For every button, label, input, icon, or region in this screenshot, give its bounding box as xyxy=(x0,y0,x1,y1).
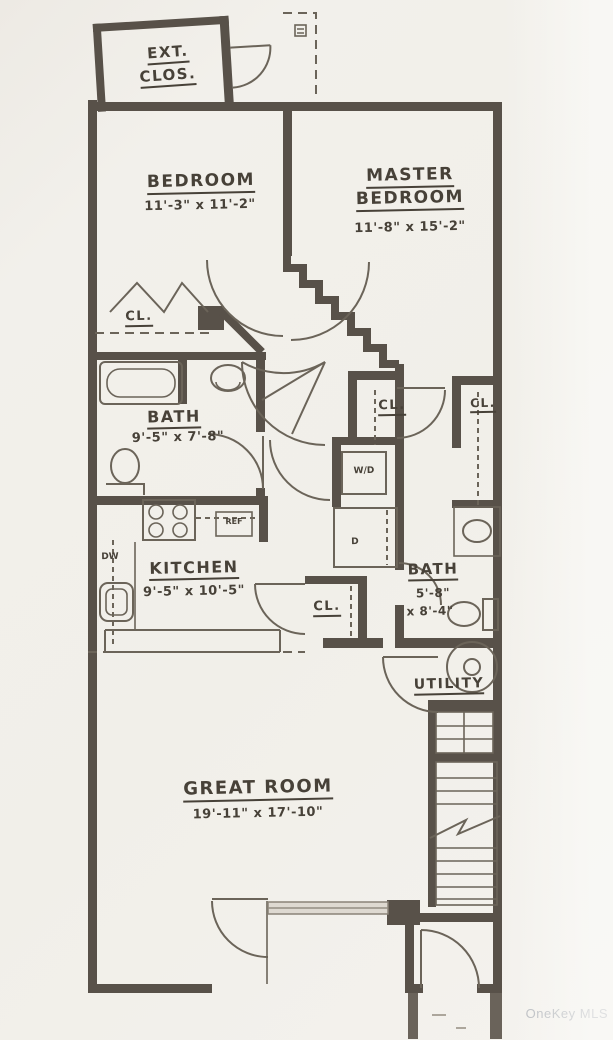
stair-break-line xyxy=(430,816,500,838)
bath1-label: BATH xyxy=(142,408,206,429)
kitchen-peninsula xyxy=(105,630,280,652)
porch-wall-left xyxy=(408,993,418,1039)
openings xyxy=(268,902,502,1039)
kitchen-dims: 9'-5" x 10'-5" xyxy=(136,584,252,600)
stairs xyxy=(430,712,500,905)
bath1-toilet xyxy=(111,449,139,483)
great-room-door-arc xyxy=(212,899,268,957)
bifold-doors xyxy=(110,283,208,312)
hall-closet-label: CL. xyxy=(371,399,413,417)
dashed-boundary xyxy=(283,13,316,100)
washer-dryer-label: W/D xyxy=(346,467,382,477)
dishwasher-label: DW xyxy=(98,553,122,563)
master-bedroom-dims: 11'-8" x 15'-2" xyxy=(350,220,470,236)
hall-door-arc xyxy=(242,362,325,445)
kitchen-closet-door-arc xyxy=(255,584,305,634)
floor-plan-page: EXT. CLOS. BEDROOM 11'-3" x 11'-2" MASTE… xyxy=(0,0,613,1040)
kitchen-closet-label: CL. xyxy=(306,600,348,618)
master-closet-label: CL. xyxy=(464,397,502,413)
refrigerator-label: REF xyxy=(217,518,251,527)
bath1-dims: 9'-5" x 7'-8" xyxy=(122,430,234,446)
great-room-dims: 19'-11" x 17'-10" xyxy=(186,805,330,822)
bath2-label: BATH xyxy=(403,561,463,581)
bath1-sink xyxy=(211,365,245,391)
bedroom-closet-label: CL. xyxy=(116,310,162,328)
ext-closet-door-arc xyxy=(230,45,272,87)
door-arcs xyxy=(207,260,479,988)
master-bedroom-label-1: MASTER xyxy=(360,166,460,189)
great-room-label: GREAT ROOM xyxy=(182,777,334,802)
dryer-label: D xyxy=(345,538,365,548)
entry-door-arc xyxy=(421,930,479,988)
watermark: OneKey MLS xyxy=(518,1007,608,1021)
kitchen-label: KITCHEN xyxy=(147,559,241,581)
bedroom-dims: 11'-3" x 11'-2" xyxy=(140,198,260,214)
porch-wall-right xyxy=(490,993,502,1039)
bath2-dims-1: 5'-8" xyxy=(407,586,459,600)
bedroom-label: BEDROOM xyxy=(145,172,257,195)
master-bedroom-label-2: BEDROOM xyxy=(352,189,468,212)
bath2-sink xyxy=(463,520,491,542)
fixtures xyxy=(100,283,500,692)
hall-door-arc-2 xyxy=(270,440,330,500)
floor-plan-drawing xyxy=(0,0,613,1040)
utility-label: UTILITY xyxy=(410,676,488,695)
bath2-dims-2: x 8'-4" xyxy=(400,604,460,618)
